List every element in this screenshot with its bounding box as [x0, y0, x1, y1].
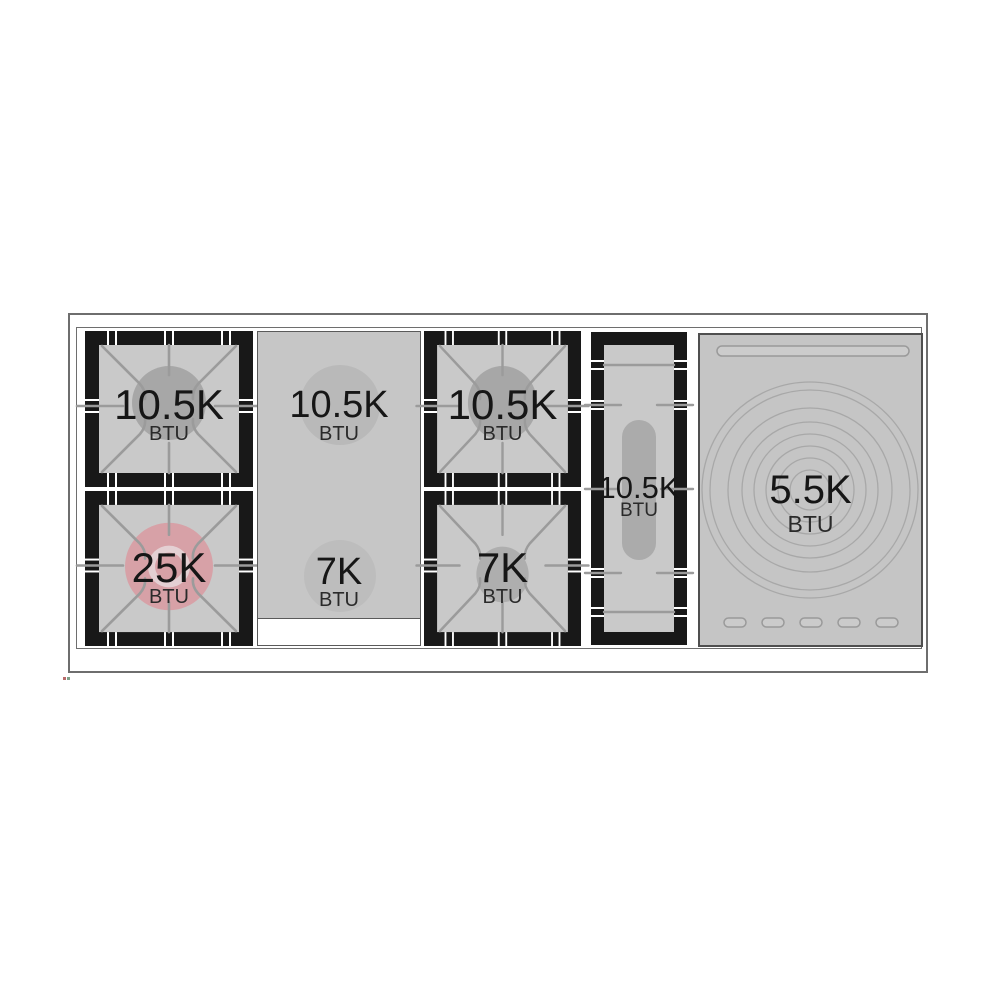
burner-btu-value: 10.5K	[575, 472, 703, 503]
burner-btu-value: 10.5K	[85, 384, 253, 426]
simmer-plate-section: 5.5K BTU	[698, 333, 923, 647]
burner-btu-value: 7K	[424, 547, 581, 589]
center-burner-panel: 10.5K BTU 7K BTU	[257, 331, 421, 619]
burner-btu-unit: BTU	[424, 587, 581, 607]
burner-btu-value: 10.5K	[424, 384, 581, 426]
burner-right-front: 7K BTU	[424, 491, 581, 646]
burner-left-rear: 10.5K BTU	[85, 331, 253, 487]
handle-bar	[717, 346, 909, 356]
burner-btu-unit: BTU	[424, 424, 581, 444]
burner-btu-value: 25K	[85, 547, 253, 589]
burner-btu-unit: BTU	[85, 587, 253, 607]
burner-btu-value: 5.5K	[700, 470, 921, 510]
vent-slots	[724, 618, 898, 627]
scan-artifact	[63, 677, 66, 680]
griddle-section: 10.5K BTU	[591, 332, 687, 645]
cooktop-surface: 10.5K BTU	[76, 327, 922, 649]
griddle-cover-strip	[257, 619, 421, 646]
rangetop-chassis: 10.5K BTU	[68, 313, 928, 673]
burner-btu-value: 7K	[258, 553, 420, 591]
burner-left-front: 25K BTU	[85, 491, 253, 646]
burner-btu-value: 10.5K	[258, 386, 420, 424]
burner-btu-unit: BTU	[85, 424, 253, 444]
burner-btu-unit: BTU	[258, 590, 420, 610]
burner-btu-unit: BTU	[700, 513, 921, 536]
burner-btu-unit: BTU	[575, 501, 703, 520]
burner-btu-unit: BTU	[258, 424, 420, 444]
rangetop-spec-diagram: 10.5K BTU	[0, 0, 1000, 1000]
burner-right-rear: 10.5K BTU	[424, 331, 581, 487]
